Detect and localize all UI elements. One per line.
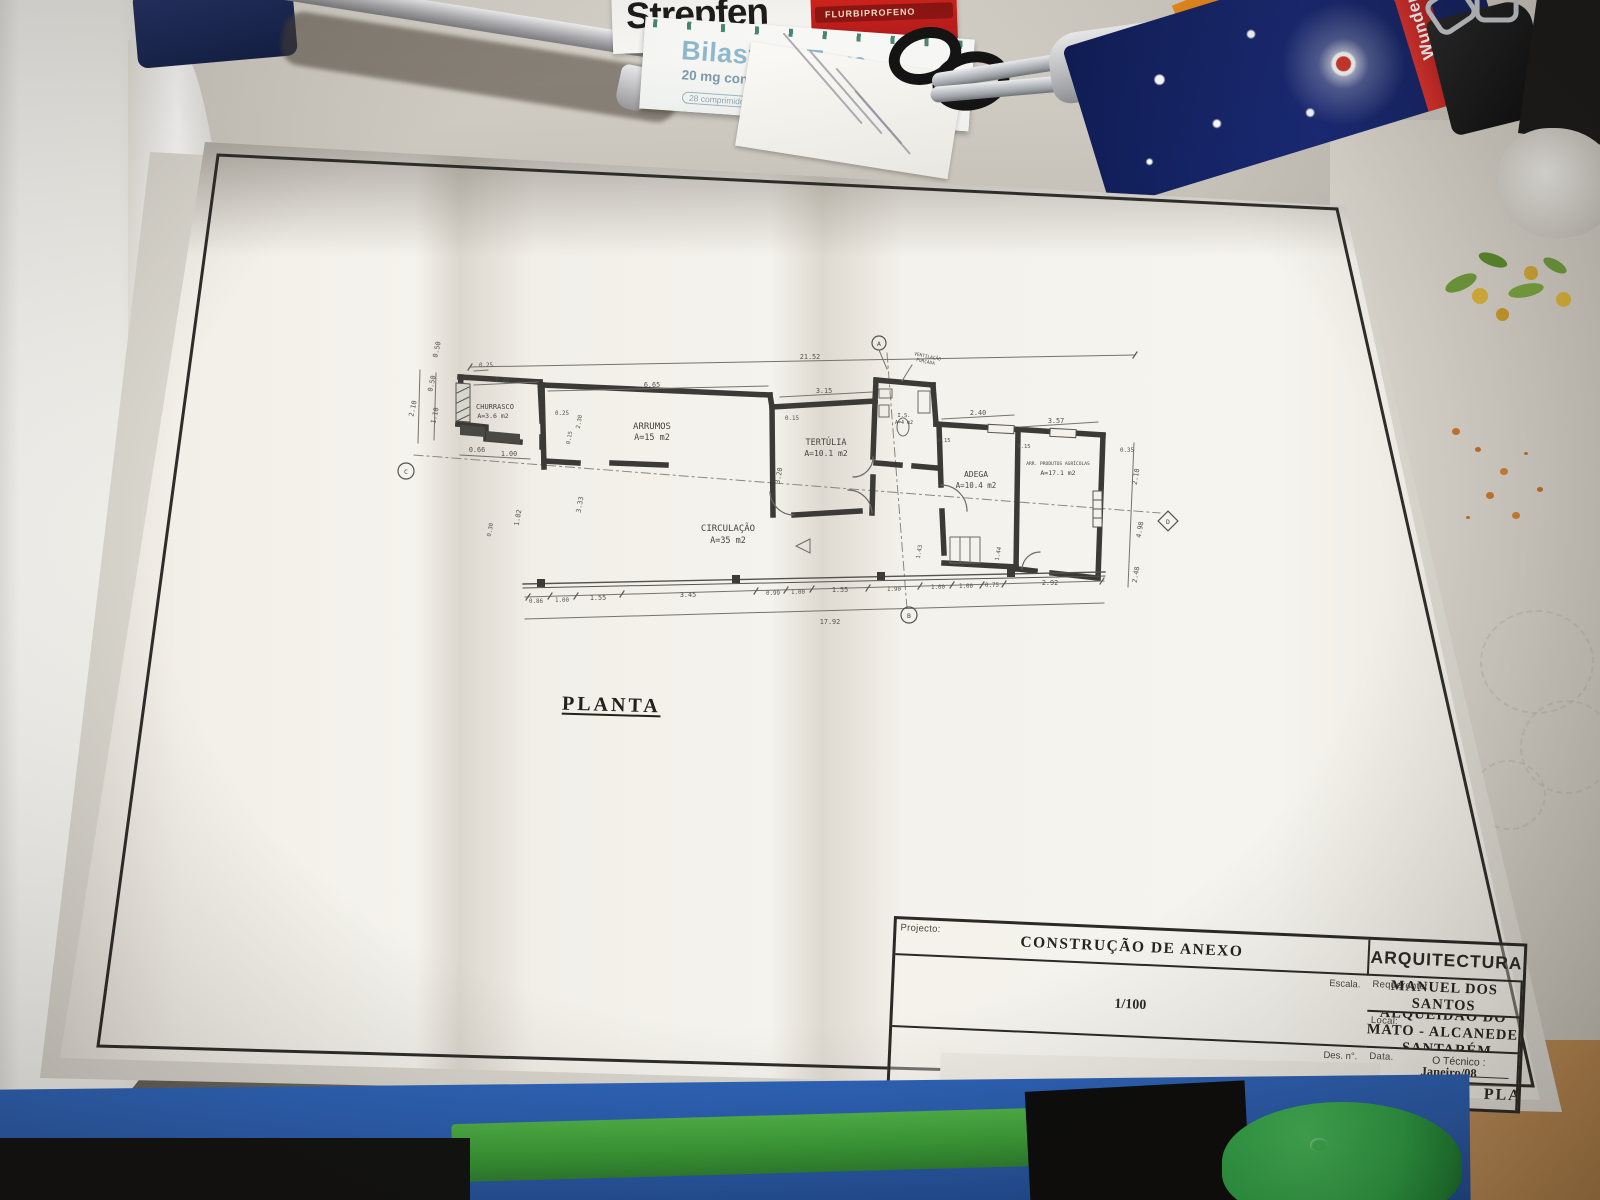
marker-letter: B	[907, 612, 911, 620]
marker-letter: C	[404, 468, 408, 476]
room-area: A=15 m2	[634, 433, 670, 443]
dark-shadow-bottom-left	[0, 1138, 470, 1200]
dim-label: 1.55	[590, 594, 606, 602]
grill-bench	[460, 425, 485, 437]
room-label: ADEGA	[964, 470, 988, 479]
room-label: ARRUMOS	[633, 422, 671, 432]
dim-label: 1.00	[501, 450, 517, 458]
dim-label: 6.65	[644, 381, 660, 389]
room-area: A=10.1 m2	[804, 449, 848, 458]
dim-label: 1.90	[887, 587, 901, 593]
scale-value: 1/100	[893, 987, 1367, 1024]
room-area: A=35 m2	[710, 536, 746, 546]
dim-label: 3.57	[1048, 417, 1064, 425]
dark-object-bottom	[1025, 1080, 1252, 1200]
dim-label: 1.00	[791, 590, 805, 596]
dim-label: 0.15	[785, 416, 799, 422]
discipline-value: ARQUITECTURA	[1370, 946, 1523, 974]
dim-label: 1.00	[555, 598, 569, 604]
dim-label: 1.00	[959, 584, 973, 590]
marker-letter: D	[1166, 518, 1170, 526]
room-area: A=3.6 m2	[477, 412, 508, 420]
dim-label: 2.25	[495, 377, 510, 384]
dim-label: 2.92	[1042, 579, 1058, 587]
room-label: CIRCULAÇÃO	[701, 523, 755, 534]
room-area: A=17.1 m2	[1040, 469, 1075, 477]
technician-label: O Técnico :	[1432, 1055, 1486, 1069]
room-label: I.S.	[897, 413, 910, 419]
dim-label: 0.86	[529, 599, 543, 605]
dim-label: 0.35	[1120, 448, 1134, 454]
scale-label: Escala.	[1329, 978, 1361, 990]
plan-caption: PLANTA	[562, 693, 661, 719]
dim-label: 0.25	[479, 363, 493, 369]
dim-label: 21.52	[800, 353, 820, 361]
dim-label: 3.45	[680, 591, 696, 599]
dim-label: 2.40	[970, 409, 986, 417]
dim-label: 17.92	[820, 618, 840, 626]
dim-label: 0.66	[469, 446, 485, 454]
marker-letter: A	[877, 340, 881, 348]
date-label: Data.	[1369, 1051, 1394, 1063]
dim-label: 0.15	[937, 438, 950, 444]
dim-label: 0.75	[985, 583, 999, 589]
dim-label: 1.00	[931, 585, 945, 591]
piece-value: PLANTA	[1483, 1086, 1518, 1107]
room-area: A=4 m2	[895, 420, 913, 426]
room-area: A=10.4 m2	[956, 481, 997, 490]
photo-scene: Strepfen FLURBIPROFENO Bilastina Teva 20…	[0, 0, 1600, 1200]
dim-label: 3.15	[816, 387, 832, 395]
dim-label: 0.99	[766, 591, 780, 597]
room-label: TERTÚLIA	[806, 436, 847, 448]
dim-label: 0.15	[1017, 444, 1030, 450]
lid-center-dot	[1310, 1138, 1328, 1152]
dim-label: 0.25	[555, 411, 569, 417]
room-label: CHURRASCO	[476, 403, 514, 411]
dim-label: 1.55	[832, 586, 848, 594]
